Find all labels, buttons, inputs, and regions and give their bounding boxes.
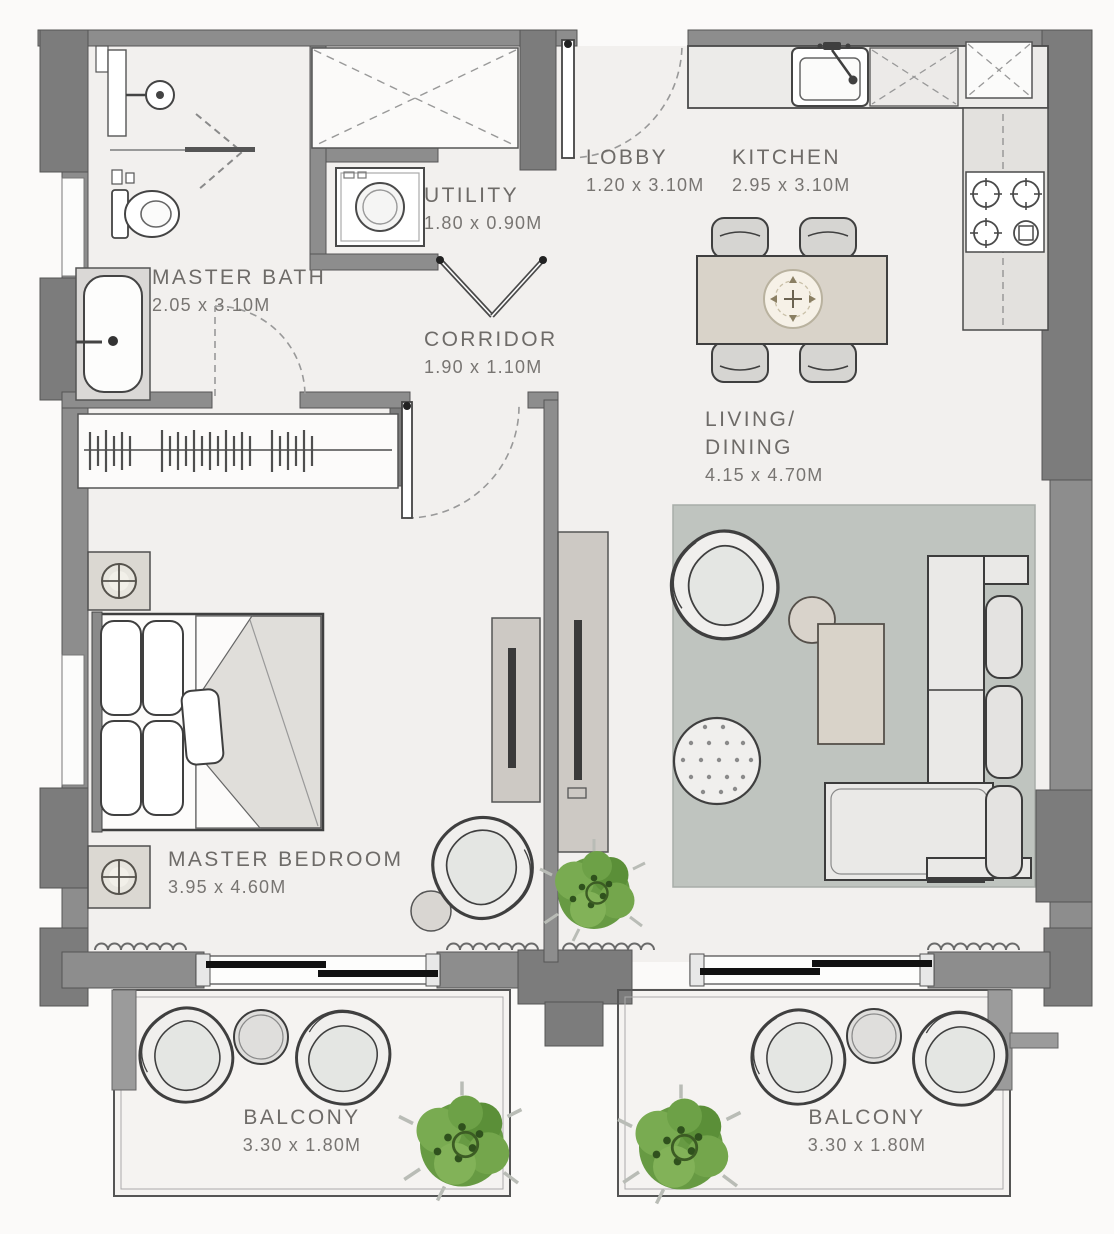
fridge-x-icon [870, 48, 958, 106]
bathtub-icon [76, 268, 150, 400]
floor-plan-drawing [0, 0, 1114, 1234]
bed-icon [92, 612, 323, 832]
tv-icon [574, 620, 582, 780]
hanger-rail-icon [78, 414, 398, 488]
pouf-icon [674, 718, 760, 804]
coffee-table-icon [818, 624, 884, 744]
tall-cabinet-x-icon [966, 42, 1032, 98]
balcony-table-icon [234, 1010, 288, 1064]
balcony-table-icon [847, 1009, 901, 1063]
kitchen-sink-icon [792, 42, 868, 106]
washing-machine-icon [336, 168, 424, 246]
table-centerpiece-icon [764, 270, 822, 328]
stove-icon [966, 172, 1044, 252]
tv-icon [508, 648, 516, 768]
wardrobe-x-icon [312, 48, 518, 148]
floor-plan: MASTER BATH 2.05 x 3.10M UTILITY 1.80 x … [0, 0, 1114, 1234]
